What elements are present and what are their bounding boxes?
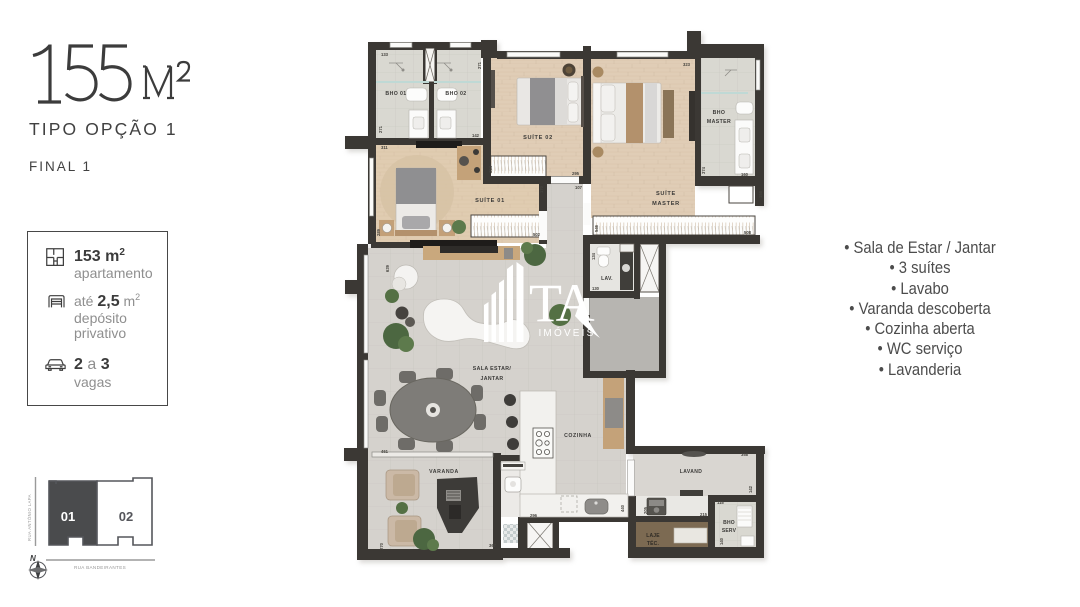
svg-text:374: 374 [701,166,706,174]
svg-text:SUÍTE 01: SUÍTE 01 [475,196,505,204]
svg-text:IMÓVEIS: IMÓVEIS [538,326,595,339]
svg-text:BHO 01: BHO 01 [385,91,406,97]
svg-text:107: 107 [575,185,583,190]
svg-text:296: 296 [530,513,538,518]
svg-text:SALA ESTAR/: SALA ESTAR/ [473,366,512,372]
svg-text:367: 367 [489,543,497,548]
svg-text:142: 142 [472,133,480,138]
svg-text:271: 271 [378,125,383,133]
svg-text:508: 508 [744,230,752,235]
svg-text:133: 133 [381,52,389,57]
svg-text:02: 02 [119,509,133,524]
svg-text:N: N [30,554,36,563]
svg-text:323: 323 [683,62,691,67]
svg-text:LAV.: LAV. [601,276,613,282]
svg-text:115: 115 [717,500,724,505]
svg-text:SUÍTE 02: SUÍTE 02 [523,133,553,141]
svg-text:271: 271 [477,61,482,69]
svg-text:205: 205 [643,506,648,514]
svg-text:LAJE: LAJE [646,533,660,539]
svg-text:639: 639 [385,264,390,272]
svg-text:461: 461 [381,449,389,454]
svg-text:LAVAND: LAVAND [680,469,703,475]
svg-text:311: 311 [381,145,388,150]
svg-text:215: 215 [700,512,708,517]
svg-text:140: 140 [719,537,724,545]
svg-text:RUA BANDEIRANTES: RUA BANDEIRANTES [74,565,126,570]
svg-text:358: 358 [741,452,749,457]
svg-text:130: 130 [592,286,600,291]
svg-text:MASTER: MASTER [707,119,731,125]
svg-text:BHO: BHO [723,520,735,526]
svg-text:SERV: SERV [722,528,737,534]
svg-text:364: 364 [488,165,493,173]
svg-text:BHO 02: BHO 02 [445,91,466,97]
svg-text:170: 170 [539,185,544,193]
svg-text:270: 270 [379,542,384,550]
svg-text:RUA ANTÔNIO LAPA: RUA ANTÔNIO LAPA [27,494,32,541]
svg-text:289: 289 [376,228,381,236]
svg-text:COZINHA: COZINHA [564,433,592,439]
svg-text:JANTAR: JANTAR [480,376,503,382]
svg-text:502: 502 [533,232,541,237]
svg-text:BHO: BHO [713,110,726,116]
svg-text:TÉC.: TÉC. [647,539,660,547]
svg-text:VARANDA: VARANDA [429,469,459,475]
svg-text:158: 158 [758,190,763,198]
svg-text:546: 546 [594,224,599,232]
svg-text:MASTER: MASTER [652,201,680,207]
svg-text:SUÍTE: SUÍTE [656,189,676,197]
svg-text:160: 160 [741,172,749,177]
svg-text:295: 295 [572,171,580,176]
svg-text:142: 142 [748,485,753,493]
svg-text:134: 134 [591,252,596,260]
svg-text:01: 01 [61,509,75,524]
svg-text:440: 440 [620,504,625,512]
